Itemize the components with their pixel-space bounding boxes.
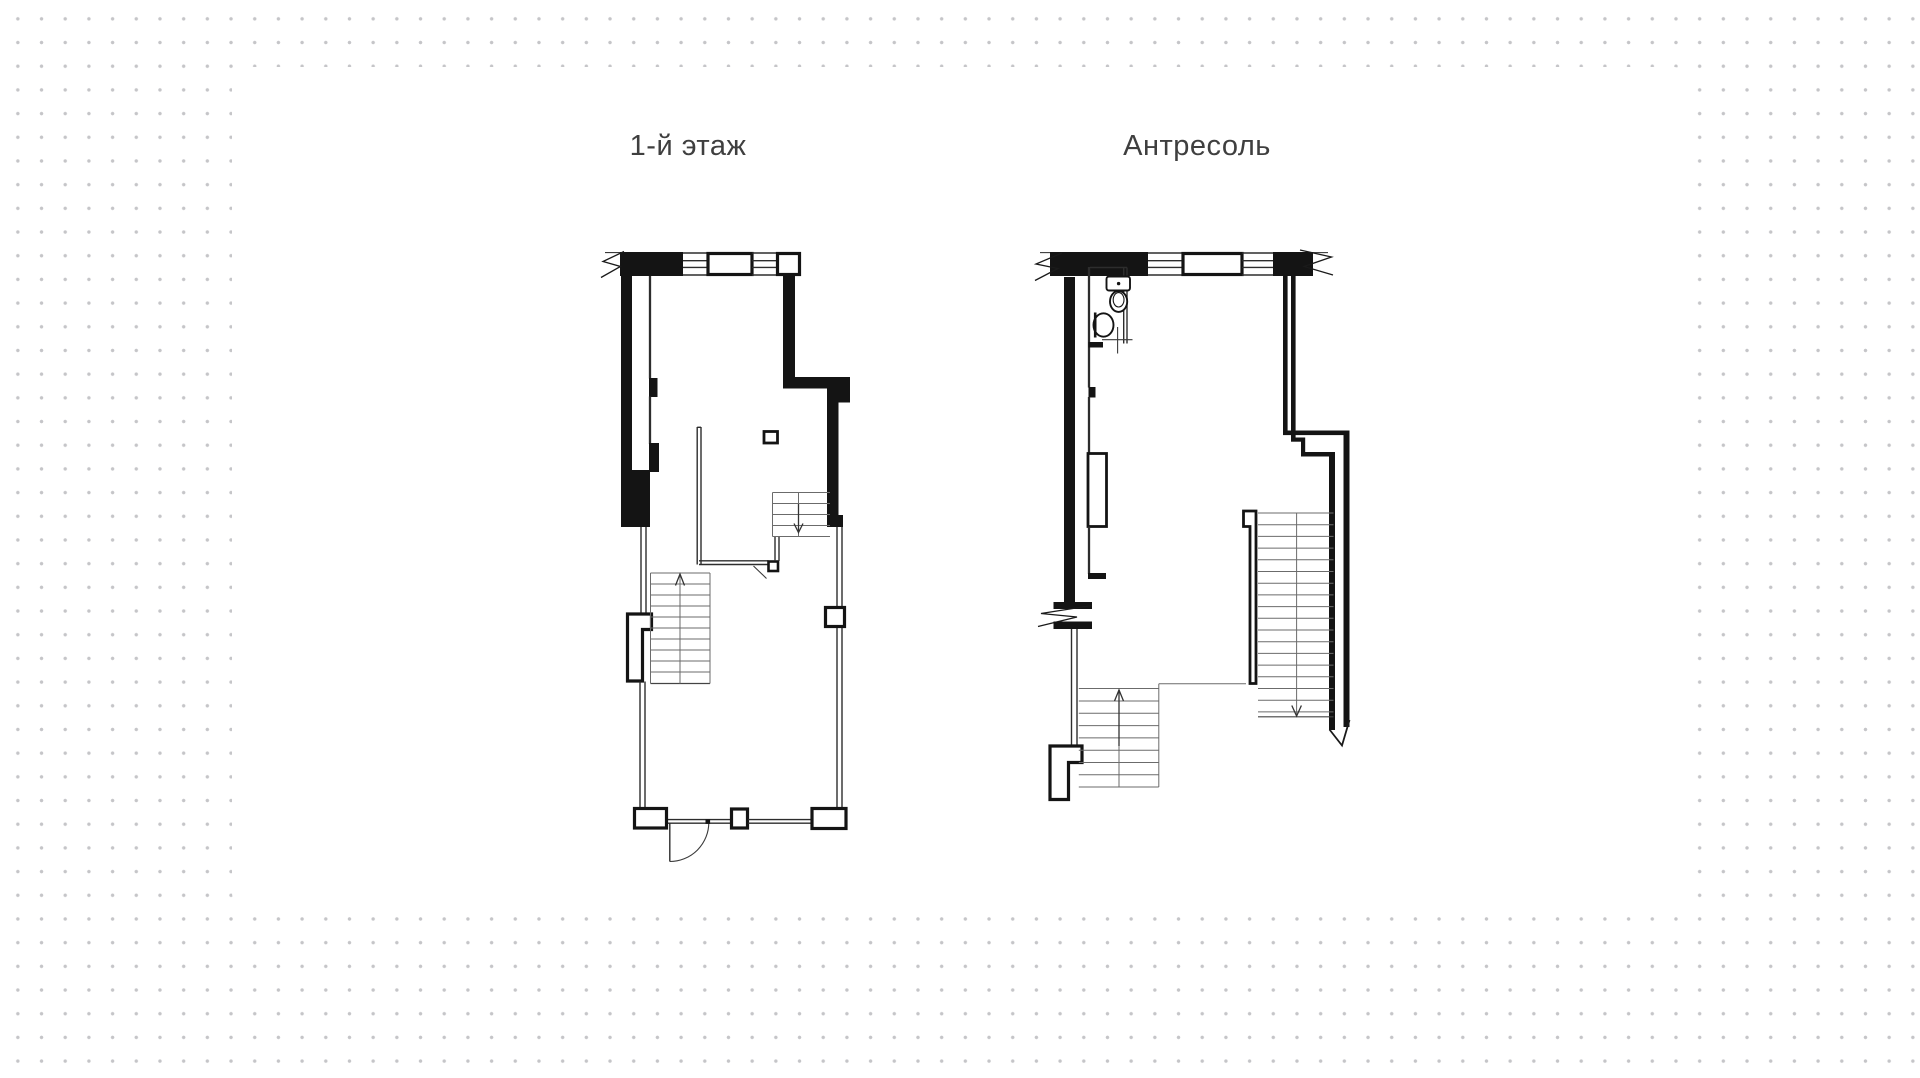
pier — [826, 608, 845, 627]
floor1-left-wall — [621, 272, 659, 808]
stair-down-arrow-icon — [794, 504, 803, 533]
mezzanine-top-wall — [1035, 250, 1333, 281]
wall-block — [628, 614, 652, 681]
window-icon — [1148, 253, 1183, 275]
floor1-stair-down — [773, 493, 831, 562]
floor1-plan — [601, 252, 850, 862]
floor1-partition — [697, 427, 778, 579]
door-swing-icon — [668, 819, 731, 861]
window-icon — [752, 253, 778, 275]
stair-side-wall — [1244, 511, 1257, 684]
window-icon — [1242, 253, 1274, 275]
mezzanine-stair-up — [1079, 684, 1246, 787]
corner-block — [635, 809, 667, 829]
corner-block — [812, 809, 846, 829]
door-leaf-tick — [754, 566, 767, 579]
floor-plans-drawing — [0, 0, 1920, 1078]
page: { "page": { "background": { "dot_color":… — [0, 0, 1920, 1078]
wall-break-icon — [1038, 602, 1092, 629]
window-icon — [683, 253, 708, 275]
floor1-stair-up — [651, 573, 711, 684]
mezzanine-right-wall — [1283, 276, 1350, 746]
floor1-bottom-wall — [635, 809, 847, 862]
pier — [732, 809, 748, 828]
wc-room — [1089, 268, 1133, 354]
post — [769, 562, 779, 572]
floor1-right-wall — [783, 276, 850, 809]
column — [764, 432, 778, 444]
sink-icon — [1094, 313, 1114, 338]
corner-block — [1050, 746, 1082, 800]
window-icon — [748, 820, 812, 824]
mezzanine-stair-down — [1244, 511, 1334, 717]
mezzanine-plan — [1035, 250, 1350, 800]
